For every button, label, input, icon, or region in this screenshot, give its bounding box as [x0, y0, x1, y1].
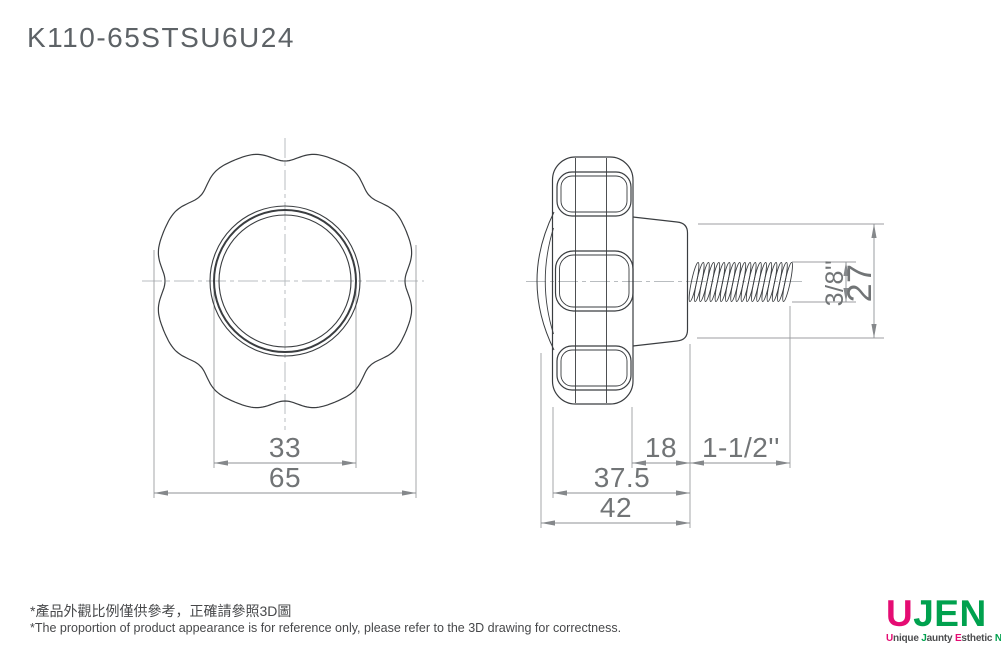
drawing-page: K110-65STSU6U24	[0, 0, 1001, 667]
dim-37-5-label: 37.5	[594, 462, 651, 493]
dim-18-label: 18	[645, 432, 677, 463]
dim-33-label: 33	[269, 432, 301, 463]
dim-thread-diameter-label: 3/8''	[821, 260, 849, 307]
extension-lines	[154, 224, 884, 528]
side-view	[537, 157, 794, 404]
tagline-word-jaunty: aunty	[927, 633, 953, 644]
tagline-word-esthetic: sthetic	[961, 633, 992, 644]
ujen-logo: UJEN Unique Jaunty Esthetic Noble	[886, 595, 1000, 644]
dim-thread-length-label: 1-1/2''	[702, 432, 780, 463]
dimensions: 33 65 18 1-1/2'' 37.5 42 27 3/8''	[154, 224, 879, 526]
footnote: *產品外觀比例僅供參考，正確請參照3D圖 *The proportion of …	[30, 603, 621, 636]
dimension-arrows	[154, 224, 877, 526]
logo-letters-jen: JEN	[913, 593, 986, 634]
logo-letter-u: U	[886, 593, 913, 634]
logo-wordmark: UJEN	[886, 595, 1000, 632]
knob-body-side	[553, 157, 634, 404]
tagline-word-unique: nique	[893, 633, 919, 644]
logo-tagline: Unique Jaunty Esthetic Noble	[886, 634, 1000, 644]
tagline-initial-n: N	[995, 633, 1001, 644]
footnote-chinese: *產品外觀比例僅供參考，正確請參照3D圖	[30, 603, 621, 620]
dim-42-label: 42	[600, 492, 632, 523]
technical-drawing: 33 65 18 1-1/2'' 37.5 42 27 3/8''	[0, 0, 1001, 667]
centerlines	[142, 138, 802, 430]
dim-65-label: 65	[269, 462, 301, 493]
dimension-labels: 33 65 18 1-1/2'' 37.5 42 27 3/8''	[269, 260, 879, 523]
tagline-initial-u: U	[886, 633, 893, 644]
footnote-english: *The proportion of product appearance is…	[30, 620, 621, 636]
